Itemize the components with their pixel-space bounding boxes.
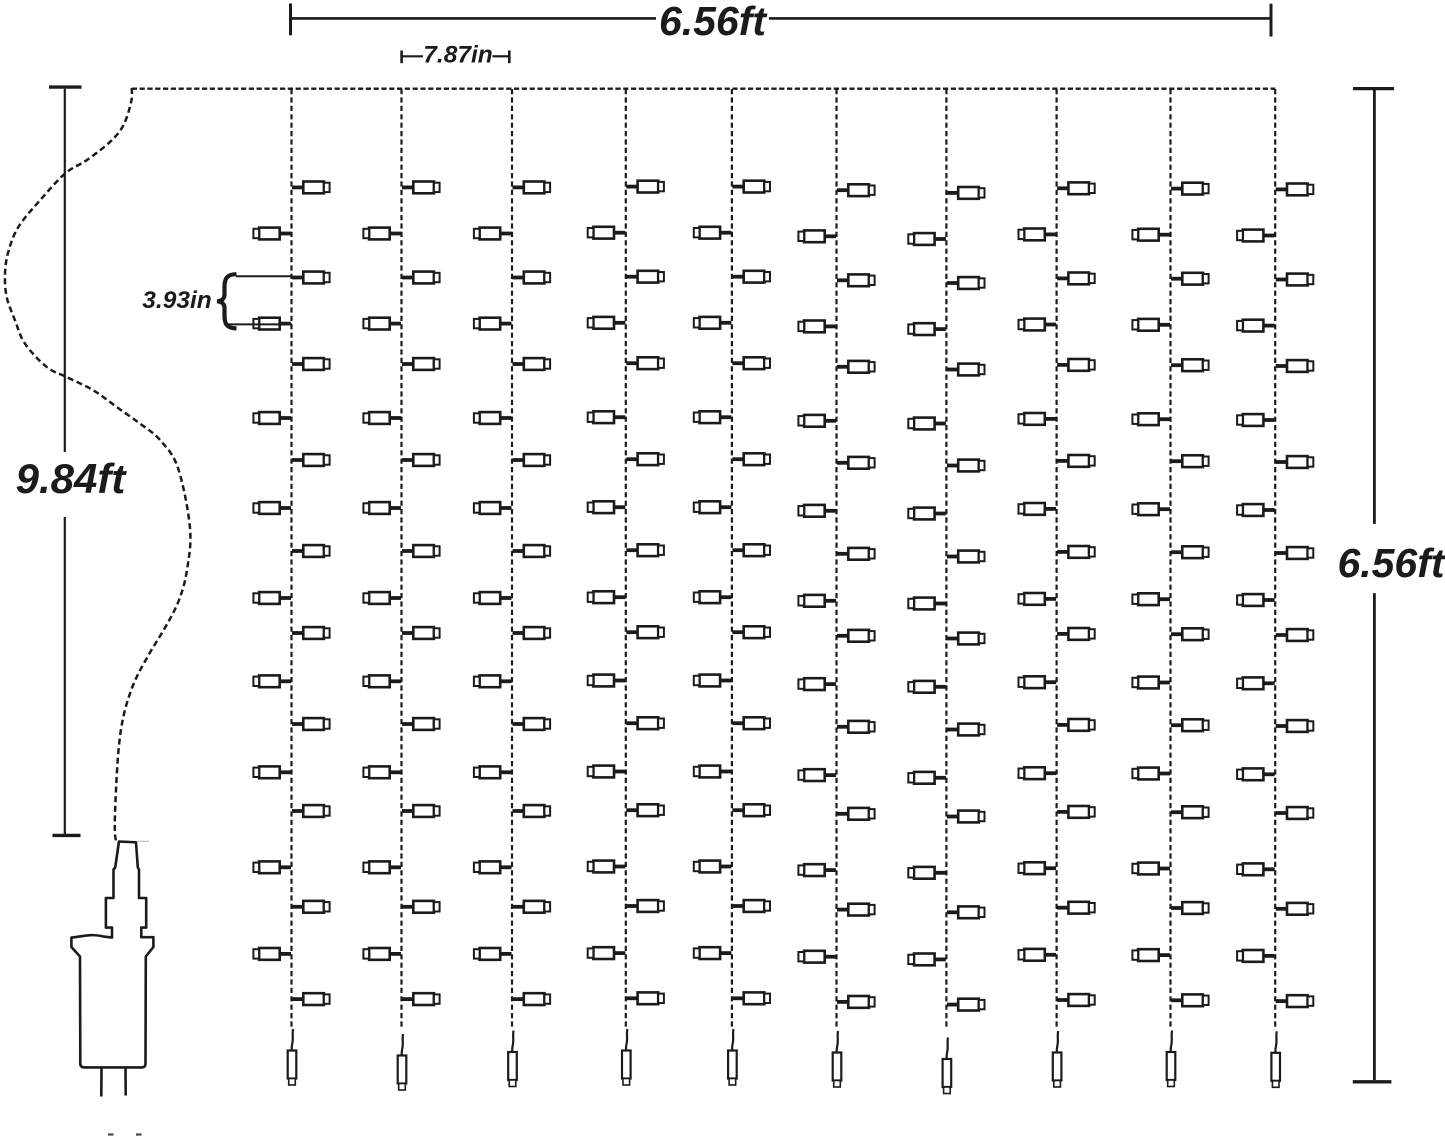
svg-text:7.87in: 7.87in xyxy=(423,42,492,69)
svg-text:6.56ft: 6.56ft xyxy=(659,0,768,44)
svg-text:6.56ft: 6.56ft xyxy=(1337,540,1445,586)
svg-text:9.84ft: 9.84ft xyxy=(16,455,128,502)
svg-text:3.93in: 3.93in xyxy=(142,287,211,314)
